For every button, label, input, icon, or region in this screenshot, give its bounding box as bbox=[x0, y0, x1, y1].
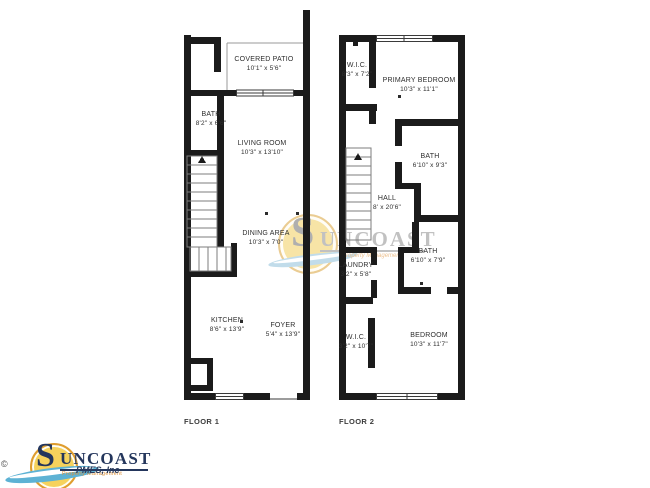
logo-overlay-text: PMES, Inc bbox=[76, 465, 120, 475]
logo-brand-initial: S bbox=[36, 437, 55, 475]
floor2-top-window bbox=[376, 34, 433, 43]
floor2-walls bbox=[339, 35, 465, 400]
floor1-entry-door-opening bbox=[270, 392, 297, 401]
copyright-symbol: © bbox=[1, 459, 8, 469]
floor1-sliding-door bbox=[236, 88, 294, 98]
suncoast-logo: © S UNCOAST Property Management PMES, In… bbox=[0, 443, 158, 488]
floor-plan-page: S UNCOAST Property Management bbox=[0, 0, 650, 488]
floor1-window bbox=[215, 392, 244, 401]
floor2-stairs bbox=[346, 148, 371, 240]
floor1-patio-edges bbox=[227, 43, 303, 90]
floor1-walls bbox=[184, 10, 310, 400]
floor2-bottom-window bbox=[376, 392, 438, 401]
floor1-stairs bbox=[187, 156, 231, 271]
floor2-bath-door-opening bbox=[394, 146, 403, 162]
floor-plans-svg bbox=[0, 0, 650, 488]
